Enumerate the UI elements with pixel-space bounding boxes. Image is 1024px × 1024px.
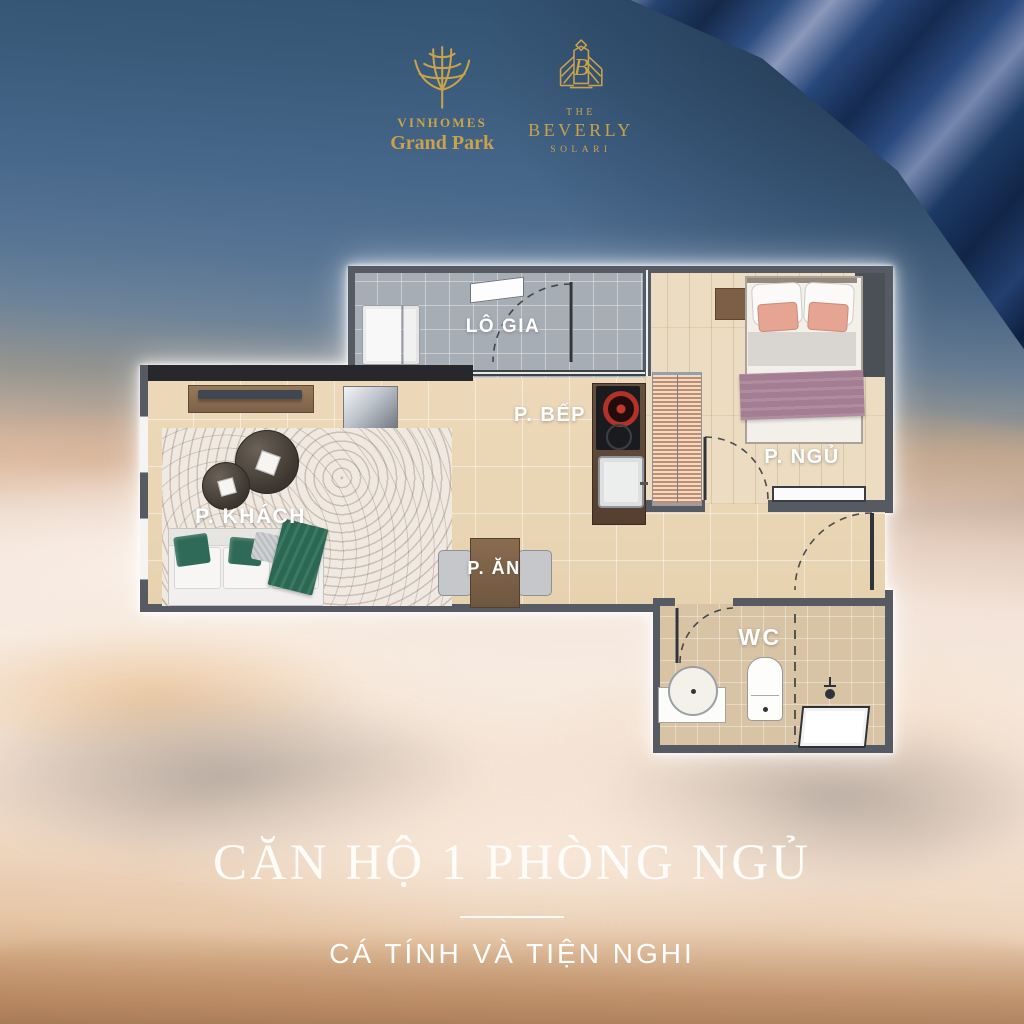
- vinhomes-brand-text: VINHOMES: [390, 115, 494, 131]
- shower-arm: [824, 677, 836, 686]
- caption-subtitle: CÁ TÍNH VÀ TIỆN NGHI: [0, 938, 1024, 970]
- poster: VINHOMES Grand Park B THE BEVERLY SOLARI: [0, 0, 1024, 1024]
- vinhomes-subbrand-text: Grand Park: [390, 132, 494, 155]
- entry-door-arc: [795, 513, 872, 590]
- brand-logos: VINHOMES Grand Park B THE BEVERLY SOLARI: [390, 38, 634, 155]
- caption-divider: [460, 916, 564, 918]
- room-label-logia: LÔ GIA: [423, 316, 583, 338]
- beverly-solari-text: SOLARI: [528, 145, 634, 155]
- room-label-bep: P. BẾP: [470, 404, 630, 427]
- room-label-ngu: P. NGỦ: [732, 446, 872, 469]
- shower-head-icon: [825, 689, 835, 699]
- vinhomes-tree-icon: [406, 38, 478, 110]
- room-label-an: P. ĂN: [458, 558, 530, 579]
- beverly-emblem-icon: B: [552, 38, 610, 102]
- caption: CĂN HỘ 1 PHÒNG NGỦ CÁ TÍNH VÀ TIỆN NGHI: [0, 834, 1024, 970]
- beverly-name-text: BEVERLY: [528, 120, 634, 141]
- room-label-khach: P. KHÁCH: [178, 505, 323, 529]
- caption-title: CĂN HỘ 1 PHÒNG NGỦ: [0, 834, 1024, 892]
- floor-plan: LÔ GIA P. BẾP P. NGỦ P. KHÁCH P. ĂN WC: [140, 266, 893, 762]
- vinhomes-logo: VINHOMES Grand Park: [390, 38, 494, 155]
- beverly-the-text: THE: [528, 107, 634, 118]
- room-label-wc: WC: [710, 624, 810, 651]
- beverly-monogram: B: [573, 54, 588, 81]
- beverly-logo: B THE BEVERLY SOLARI: [528, 38, 634, 155]
